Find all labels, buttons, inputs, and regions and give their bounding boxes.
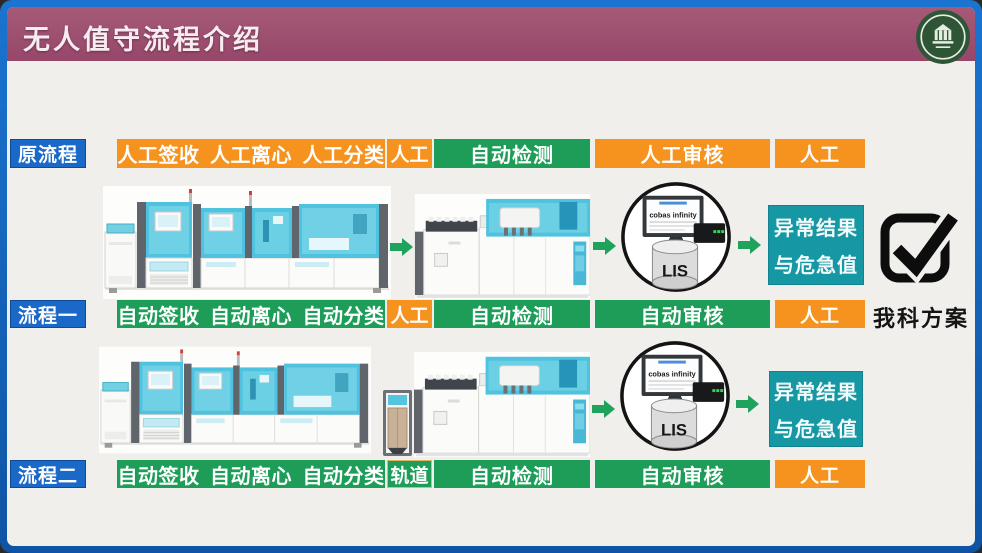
step-cell: 人工 (775, 300, 865, 328)
automation-line-image (99, 343, 371, 457)
step-cell: 人工 (775, 139, 865, 168)
flow-arrow-icon (737, 235, 763, 255)
row-label-original: 原流程 (10, 139, 86, 168)
university-seal-icon (915, 9, 971, 65)
step-cell: 自动签收 自动离心 自动分类 (117, 300, 385, 328)
step-cell: 人工 (387, 300, 432, 328)
automation-line-image (103, 186, 391, 299)
lis-node-image (618, 339, 732, 453)
track-module-image (382, 388, 413, 458)
step-cell-track: 轨道 (387, 460, 432, 488)
alert-line-1: 异常结果 (769, 212, 863, 241)
slide: 无人值守流程介绍 原流程 人工签收 人工离心 人工分类 人工 自动检测 人工审核… (0, 0, 982, 553)
step-cell: 人工 (775, 460, 865, 488)
alert-box: 异常结果 与危急值 (769, 206, 863, 284)
step-cell: 自动审核 (595, 460, 770, 488)
lis-node-image (619, 180, 733, 294)
flow-arrow-icon (592, 399, 616, 419)
alert-line-2: 与危急值 (770, 413, 862, 442)
flow-arrow-icon (390, 237, 414, 257)
solution-label: 我科方案 (868, 301, 974, 333)
flow-arrow-icon (593, 236, 617, 256)
checkmark-icon (876, 194, 962, 290)
step-cell: 自动签收 自动离心 自动分类 (117, 460, 385, 488)
step-cell: 人工审核 (595, 139, 770, 168)
title-bar: 无人值守流程介绍 (7, 7, 975, 61)
page-title: 无人值守流程介绍 (7, 7, 975, 57)
step-cell: 自动检测 (434, 460, 590, 488)
row-label-flow2: 流程二 (10, 460, 86, 488)
row-label-flow1: 流程一 (10, 300, 86, 328)
analyzer-image (414, 351, 590, 458)
alert-line-1: 异常结果 (770, 376, 862, 405)
step-cell: 自动检测 (434, 139, 590, 168)
alert-box: 异常结果 与危急值 (770, 372, 862, 446)
flow-arrow-icon (735, 394, 761, 414)
alert-line-2: 与危急值 (769, 249, 863, 278)
step-cell: 人工 (387, 139, 432, 168)
step-cell: 自动检测 (434, 300, 590, 328)
analyzer-image (414, 194, 591, 299)
step-cell: 人工签收 人工离心 人工分类 (117, 139, 385, 168)
step-cell: 自动审核 (595, 300, 770, 328)
